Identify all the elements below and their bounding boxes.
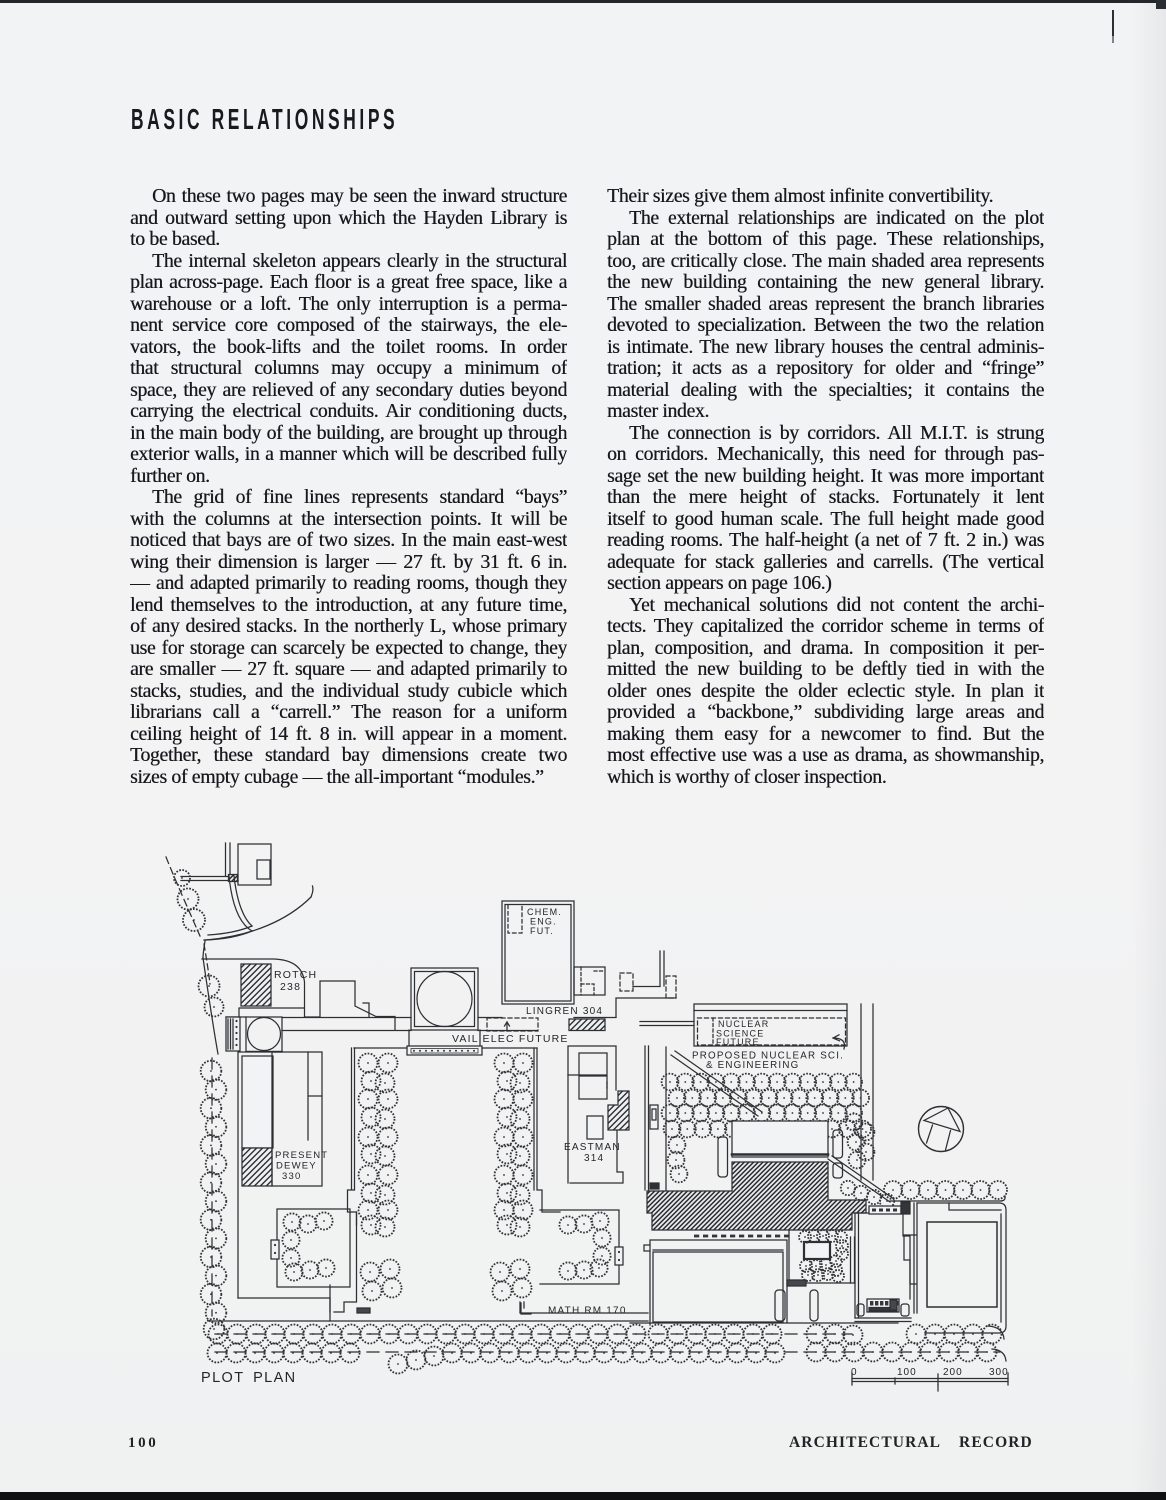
svg-text:NUCLEAR: NUCLEAR — [718, 1019, 769, 1029]
svg-text:MATH RM 170: MATH RM 170 — [548, 1306, 627, 1317]
svg-text:200: 200 — [943, 1367, 963, 1378]
svg-text:ROTCH: ROTCH — [274, 969, 317, 981]
svg-text:100: 100 — [897, 1367, 917, 1378]
svg-text:FUTURE: FUTURE — [716, 1037, 760, 1047]
svg-text:& ENGINEERING: & ENGINEERING — [706, 1060, 799, 1071]
svg-text:DEWEY: DEWEY — [276, 1161, 317, 1172]
svg-text:PRESENT: PRESENT — [275, 1150, 328, 1161]
svg-text:330: 330 — [282, 1171, 301, 1182]
svg-text:314: 314 — [584, 1153, 604, 1164]
svg-text:0: 0 — [851, 1367, 858, 1378]
svg-text:VAIL ELEC FUTURE: VAIL ELEC FUTURE — [452, 1033, 569, 1045]
svg-text:LINGREN 304: LINGREN 304 — [526, 1006, 603, 1017]
svg-text:FUT.: FUT. — [530, 926, 554, 936]
svg-text:238: 238 — [280, 981, 301, 993]
svg-text:ENG.: ENG. — [530, 917, 557, 927]
svg-text:PLOT PLAN: PLOT PLAN — [201, 1370, 297, 1386]
svg-text:300: 300 — [989, 1367, 1009, 1378]
svg-text:CHEM.: CHEM. — [527, 907, 562, 917]
svg-text:EASTMAN: EASTMAN — [564, 1142, 621, 1153]
